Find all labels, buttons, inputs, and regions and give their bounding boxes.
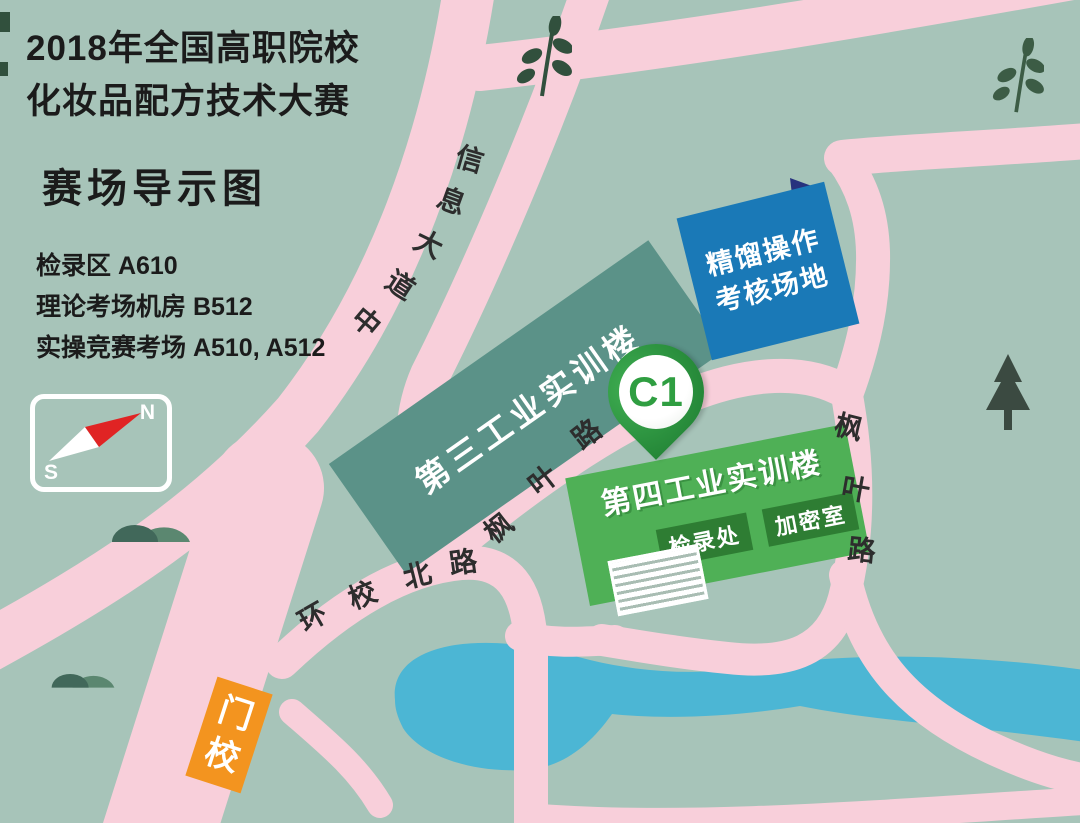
title-line1: 2018年全国高职院校	[26, 22, 360, 75]
edge-artifact	[0, 12, 10, 32]
compass-south-label: S	[44, 461, 58, 485]
sprout-icon	[516, 16, 572, 98]
gate-char-top: 门	[213, 690, 258, 739]
location-pin-c1: C1	[608, 344, 704, 440]
edge-artifact	[0, 62, 8, 76]
gate-char-bottom: 校	[200, 732, 245, 781]
legend-line: 实操竞赛考场 A510, A512	[36, 328, 325, 369]
road-river-top	[520, 636, 615, 642]
compass-north-label: N	[140, 401, 155, 425]
legend: 检录区 A610 理论考场机房 B512 实操竞赛考场 A510, A512	[36, 246, 325, 369]
bush-icon	[110, 506, 192, 544]
legend-line: 理论考场机房 B512	[36, 287, 325, 328]
title-line2: 化妆品配方技术大赛	[26, 75, 360, 128]
legend-line: 检录区 A610	[36, 246, 325, 287]
encryption-room-tag: 加密室	[762, 492, 860, 547]
page-title: 2018年全国高职院校 化妆品配方技术大赛	[26, 22, 360, 128]
sprout-icon	[992, 38, 1044, 114]
road-east-band	[842, 140, 1080, 158]
pine-tree-icon	[982, 352, 1034, 432]
campus-map: 2018年全国高职院校 化妆品配方技术大赛 赛场导示图 检录区 A610 理论考…	[0, 0, 1080, 823]
compass-rose: N S	[30, 394, 172, 492]
pin-circle: C1	[619, 355, 693, 429]
map-subtitle: 赛场导示图	[42, 156, 267, 214]
bush-icon	[50, 658, 116, 690]
pin-label: C1	[628, 368, 684, 416]
